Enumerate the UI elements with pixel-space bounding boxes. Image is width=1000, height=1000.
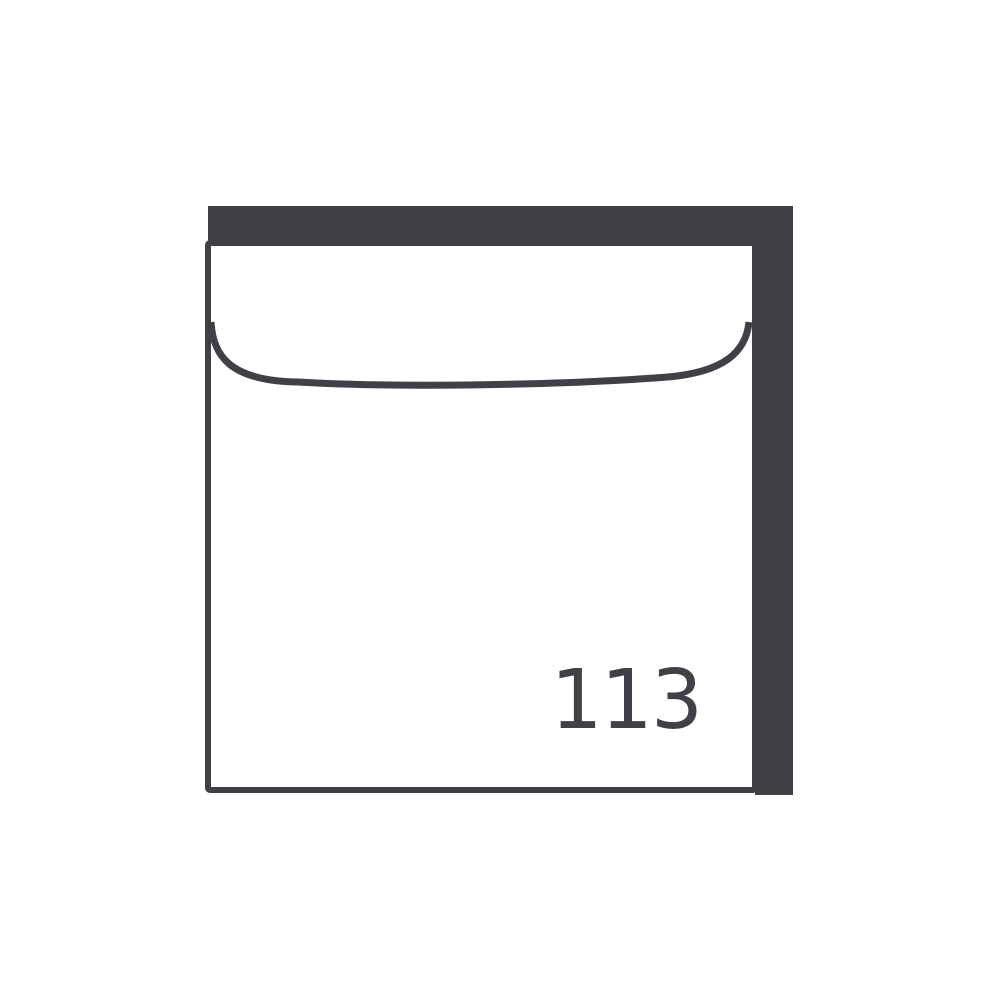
right-bar <box>755 206 793 795</box>
illustration-canvas: 113 <box>0 0 1000 1000</box>
envelope-number: 113 <box>550 653 701 748</box>
top-bar <box>208 206 793 244</box>
envelope-icon: 113 <box>0 0 1000 1000</box>
